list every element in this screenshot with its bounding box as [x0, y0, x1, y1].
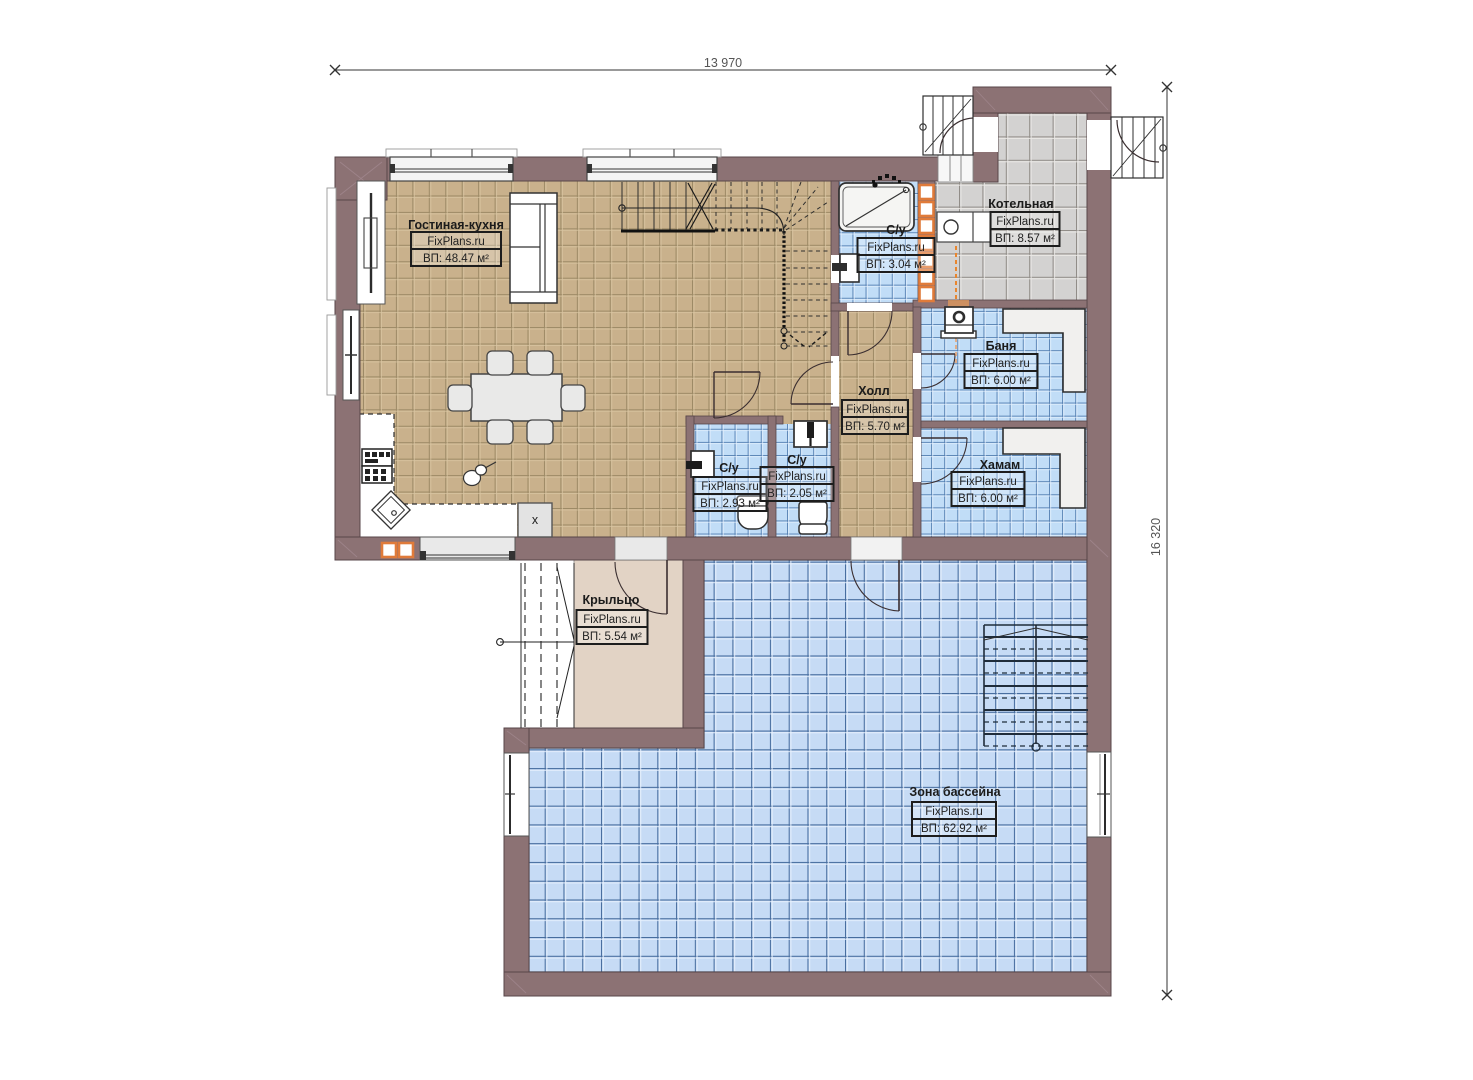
- svg-text:Хамам: Хамам: [980, 458, 1021, 472]
- svg-text:С/у: С/у: [886, 223, 906, 237]
- svg-text:13 970: 13 970: [704, 56, 742, 70]
- svg-text:Котельная: Котельная: [988, 197, 1053, 211]
- svg-text:Крыльцо: Крыльцо: [583, 593, 640, 607]
- svg-text:ВП: 5.54 м²: ВП: 5.54 м²: [582, 631, 642, 643]
- svg-text:FixPlans.ru: FixPlans.ru: [925, 806, 983, 818]
- svg-text:Гостиная-кухня: Гостиная-кухня: [408, 218, 504, 232]
- svg-text:ВП: 62.92 м²: ВП: 62.92 м²: [921, 823, 987, 835]
- svg-text:С/у: С/у: [719, 461, 739, 475]
- svg-text:ВП: 6.00 м²: ВП: 6.00 м²: [971, 375, 1031, 387]
- svg-text:ВП: 2.05 м²: ВП: 2.05 м²: [767, 488, 827, 500]
- svg-text:FixPlans.ru: FixPlans.ru: [701, 481, 759, 493]
- svg-text:FixPlans.ru: FixPlans.ru: [972, 358, 1030, 370]
- svg-text:Зона бассейна: Зона бассейна: [909, 785, 1001, 799]
- svg-text:ВП: 2.93 м²: ВП: 2.93 м²: [700, 498, 760, 510]
- svg-text:x: x: [532, 513, 539, 527]
- svg-text:FixPlans.ru: FixPlans.ru: [959, 476, 1017, 488]
- svg-text:FixPlans.ru: FixPlans.ru: [768, 471, 826, 483]
- svg-text:FixPlans.ru: FixPlans.ru: [583, 614, 641, 626]
- svg-text:FixPlans.ru: FixPlans.ru: [846, 404, 904, 416]
- svg-text:ВП: 48.47 м²: ВП: 48.47 м²: [423, 253, 489, 265]
- svg-text:С/у: С/у: [787, 453, 807, 467]
- svg-text:ВП: 5.70 м²: ВП: 5.70 м²: [845, 421, 905, 433]
- svg-text:FixPlans.ru: FixPlans.ru: [867, 242, 925, 254]
- svg-text:16 320: 16 320: [1149, 518, 1163, 556]
- svg-text:ВП: 6.00 м²: ВП: 6.00 м²: [958, 493, 1018, 505]
- svg-text:ВП: 3.04 м²: ВП: 3.04 м²: [866, 259, 926, 271]
- svg-text:Баня: Баня: [986, 339, 1017, 353]
- svg-text:FixPlans.ru: FixPlans.ru: [427, 236, 485, 248]
- svg-text:FixPlans.ru: FixPlans.ru: [996, 216, 1054, 228]
- svg-text:ВП: 8.57 м²: ВП: 8.57 м²: [995, 233, 1055, 245]
- svg-text:Холл: Холл: [858, 384, 889, 398]
